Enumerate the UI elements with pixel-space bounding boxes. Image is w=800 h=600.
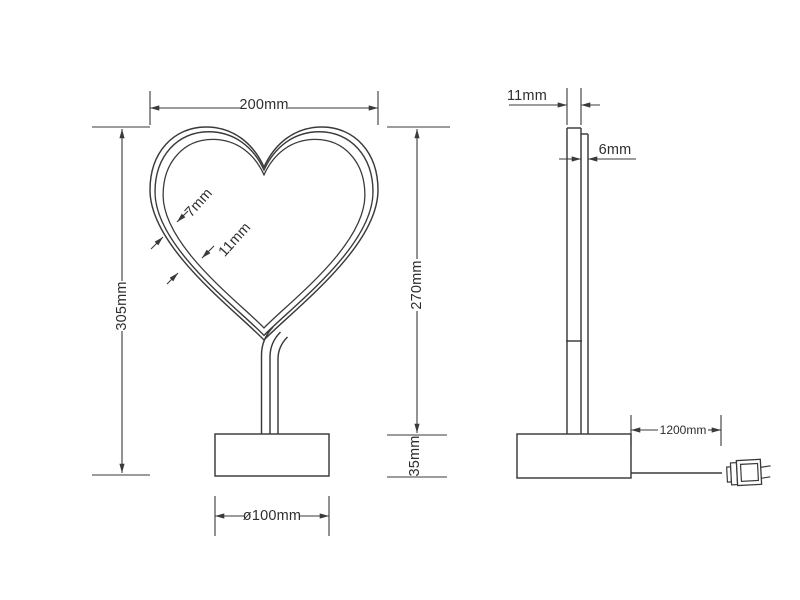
dim-total-height: 305mm: [92, 127, 150, 475]
stem-line-left: [262, 327, 274, 434]
heart-outline: [150, 127, 378, 340]
heart-stem: [262, 327, 288, 434]
stem-line-middle: [270, 332, 281, 434]
lamp-base-side: [517, 434, 631, 478]
dim-heart-height: 270mm: [387, 127, 450, 435]
dim-width: 200mm: [150, 91, 378, 125]
dim-base-diameter: ø100mm: [215, 496, 329, 536]
usb-plug: [726, 459, 771, 486]
leader-arrow-lower: [167, 273, 178, 284]
dim-label-heart-height: 270mm: [409, 260, 425, 309]
dim-label-tube-inner: 7mm: [182, 185, 216, 220]
dim-label-panel: 6mm: [599, 142, 632, 158]
technical-drawing-page: 200mm 305mm 270mm 35mm: [0, 0, 800, 600]
dim-label-base-height: 35mm: [407, 435, 423, 476]
tube-profile-side: [566, 128, 588, 434]
dim-label-tube-outer: 11mm: [216, 220, 255, 260]
dim-panel: 6mm: [559, 142, 636, 159]
heart-outline-middle: [155, 132, 373, 336]
dim-label-depth: 11mm: [507, 88, 547, 104]
dim-cable-length: 1200mm: [631, 415, 721, 446]
plug-connector-shell: [741, 463, 759, 481]
plug-pin-top: [761, 466, 771, 468]
front-view: 200mm 305mm 270mm 35mm: [92, 91, 450, 536]
heart-outline-outer: [150, 127, 378, 340]
dim-label-cable-length: 1200mm: [660, 423, 707, 437]
leader-arrow-lower: [151, 237, 163, 249]
lamp-base-front: [215, 434, 329, 476]
stem-line-right: [278, 337, 288, 434]
leader-arrow-upper: [202, 246, 214, 258]
dim-base-height: 35mm: [387, 435, 447, 477]
side-view: 11mm 6mm 1200mm: [507, 88, 772, 486]
plug-pin-bottom: [761, 477, 770, 478]
dim-label-width: 200mm: [239, 97, 288, 113]
dim-label-total-height: 305mm: [114, 281, 130, 330]
dim-depth: 11mm: [507, 88, 600, 125]
dim-label-base-diameter: ø100mm: [243, 508, 301, 524]
dimension-drawing-canvas: 200mm 305mm 270mm 35mm: [0, 0, 800, 600]
